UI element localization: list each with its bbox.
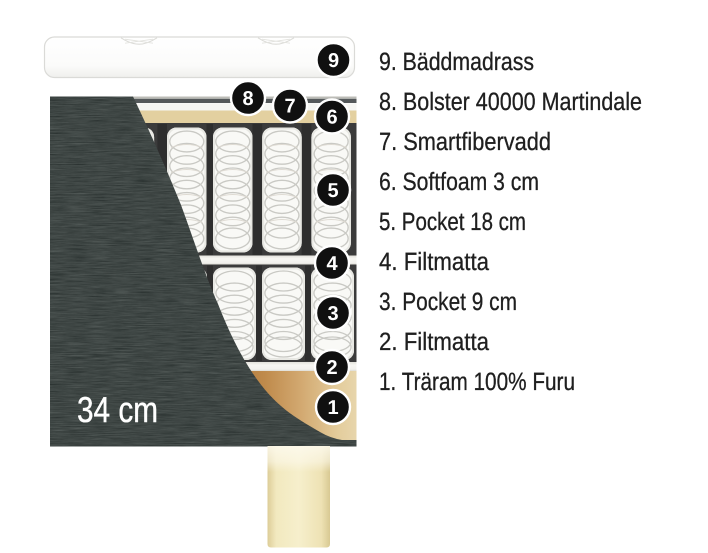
svg-text:3. Pocket 9 cm: 3. Pocket 9 cm (379, 288, 517, 316)
svg-text:9: 9 (328, 50, 339, 72)
svg-text:1. Träram 100% Furu: 1. Träram 100% Furu (379, 368, 575, 396)
svg-text:2. Filtmatta: 2. Filtmatta (379, 328, 489, 356)
svg-text:2: 2 (326, 357, 337, 379)
svg-text:8. Bolster 40000 Martindale: 8. Bolster 40000 Martindale (379, 88, 642, 116)
svg-text:5: 5 (327, 180, 338, 202)
svg-text:34 cm: 34 cm (77, 389, 158, 430)
svg-text:1: 1 (327, 397, 338, 419)
svg-text:4. Filtmatta: 4. Filtmatta (379, 248, 489, 276)
svg-text:8: 8 (242, 88, 253, 110)
svg-text:6: 6 (326, 106, 337, 128)
svg-text:9. Bäddmadrass: 9. Bäddmadrass (379, 48, 534, 76)
svg-text:7. Smartfibervadd: 7. Smartfibervadd (379, 128, 551, 156)
svg-text:3: 3 (327, 303, 338, 325)
svg-text:6. Softfoam 3 cm: 6. Softfoam 3 cm (379, 168, 539, 196)
svg-text:5. Pocket 18 cm: 5. Pocket 18 cm (379, 208, 526, 236)
svg-text:7: 7 (284, 95, 295, 117)
svg-text:4: 4 (326, 253, 338, 275)
